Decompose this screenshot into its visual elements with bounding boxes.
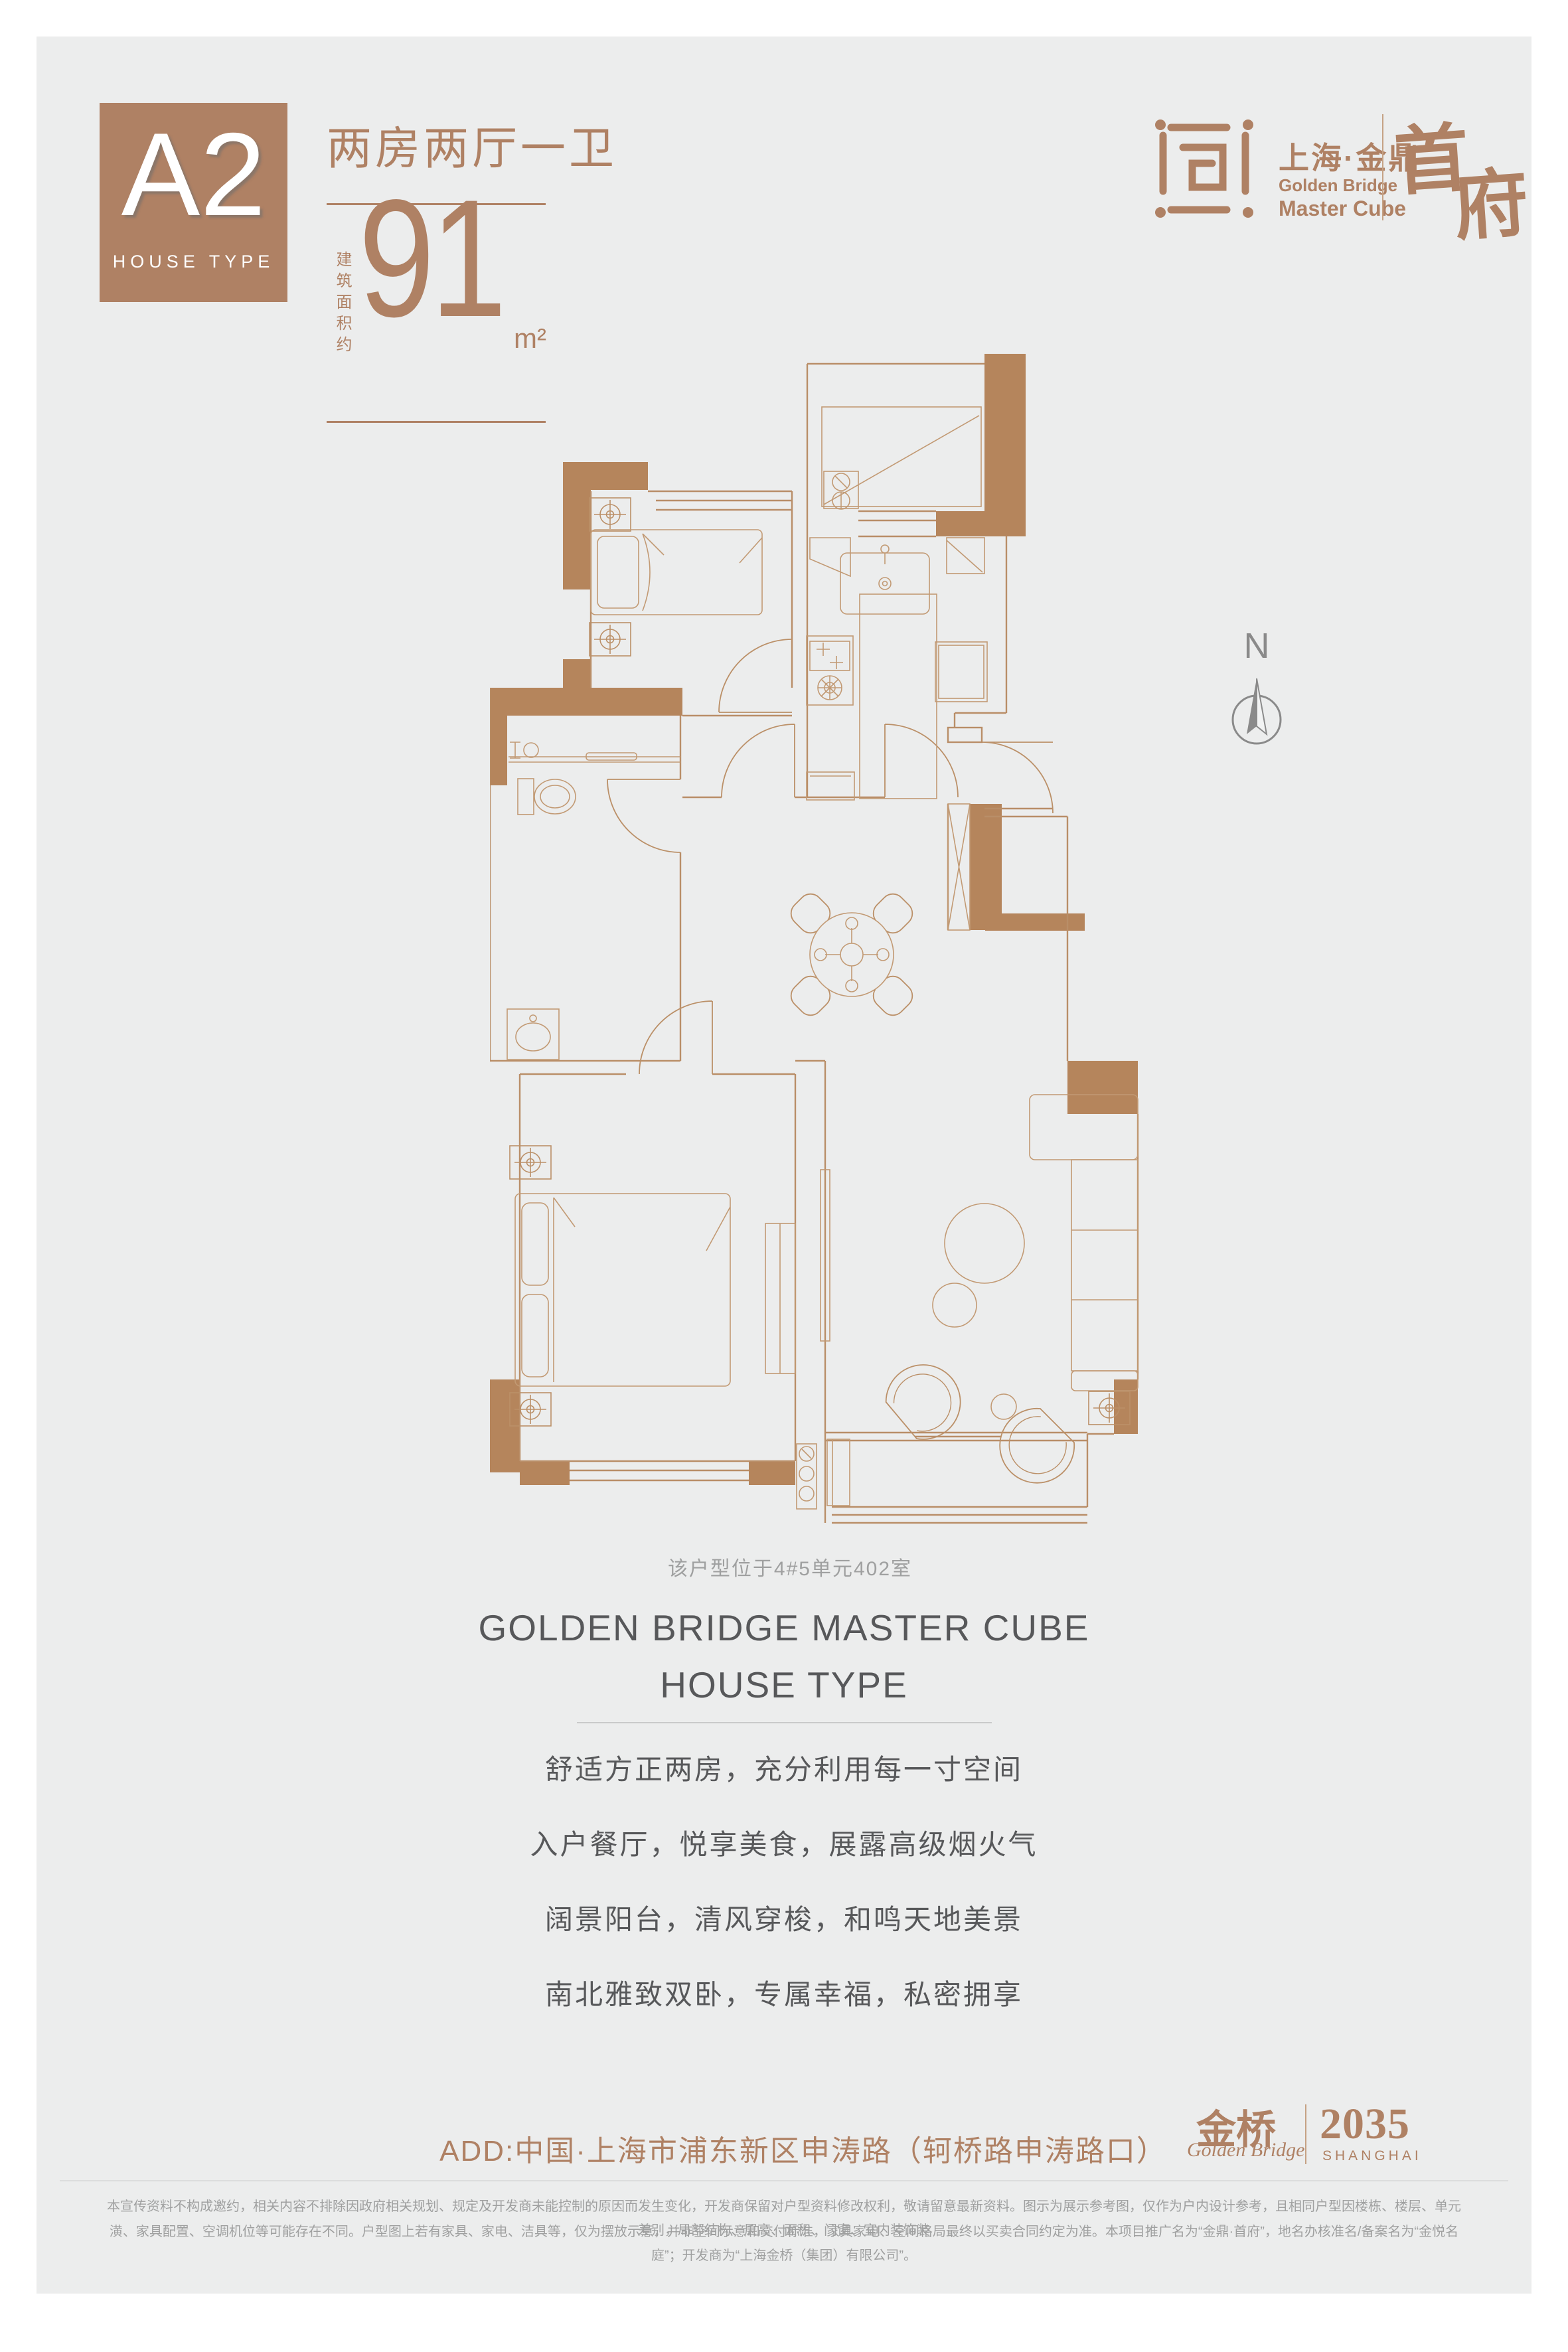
utility-counter-icon (822, 407, 981, 509)
selling-point-4: 南北雅致双卧，专属幸福，私密拥享 (0, 1972, 1568, 2013)
toilet-icon (518, 779, 576, 815)
sofa-icon (1030, 1095, 1138, 1391)
bedroom2-door (719, 639, 792, 712)
footer-brand-year: 2035 (1320, 2099, 1410, 2150)
kitchen-icons (807, 538, 987, 800)
brand-lockup: 上海·金鼎 Golden Bridge Master Cube 首 府 (1148, 106, 1520, 239)
ceiling-light-icon (589, 623, 631, 656)
compass-icon (1220, 666, 1293, 759)
section-divider (577, 1722, 992, 1723)
house-type-badge: A2 HOUSE TYPE (100, 103, 287, 302)
section-heading-line2: HOUSE TYPE (0, 1664, 1568, 1706)
brand-name-en1: Golden Bridge (1279, 175, 1397, 196)
stove-icon (807, 636, 853, 705)
dining-table-icon (786, 889, 917, 1020)
selling-point-2: 入户餐厅，悦享美食，展露高级烟火气 (0, 1822, 1568, 1863)
balcony-table-icon (991, 1394, 1016, 1419)
floor-plan (490, 344, 1174, 1539)
footer-brand-lockup: 金桥 Golden Bridge 2035 SHANGHAI (1187, 2098, 1426, 2177)
armchair-icon (878, 1350, 976, 1449)
poster-page: A2 HOUSE TYPE 两房两厅一卫 建筑面积约 91 m² 上海·金鼎 G… (0, 0, 1568, 2352)
bed2-icon (591, 530, 762, 615)
footer-brand-script: Golden Bridge (1187, 2139, 1304, 2161)
calligraphy-char-2: 府 (1450, 143, 1531, 255)
house-type-code: A2 (100, 108, 287, 241)
selling-point-3: 阔景阳台，清风穿梭，和鸣天地美景 (0, 1897, 1568, 1938)
section-heading-line1: GOLDEN BRIDGE MASTER CUBE (0, 1607, 1568, 1649)
entry-closet-icon (948, 804, 970, 930)
area-value: 91 (358, 175, 503, 343)
wall-fills (490, 354, 1138, 1485)
vanity-sink-icon (507, 1009, 559, 1059)
house-type-label: HOUSE TYPE (100, 252, 287, 272)
project-name-calligraphy: 首 府 (1391, 94, 1526, 242)
footer-brand-divider (1305, 2104, 1306, 2164)
coffee-table-icon (945, 1204, 1024, 1283)
brand-name-en2: Master Cube (1279, 196, 1406, 221)
area-label: 建筑面积约 (331, 251, 354, 357)
footer-divider (60, 2180, 1508, 2181)
master-bed-icon (515, 1194, 730, 1386)
balcony-chair-icon (984, 1399, 1083, 1498)
selling-point-1: 舒适方正两房，充分利用每一寸空间 (0, 1747, 1568, 1788)
footer-brand-city: SHANGHAI (1322, 2148, 1422, 2164)
bathroom-door (607, 779, 680, 852)
master-cube-seal-icon (1148, 113, 1260, 224)
disclaimer-line2: 潢、家具配置、空调机位等可能存在不同。户型图上若有家具、家电、洁具等，仅为摆放示… (104, 2220, 1464, 2268)
hall-door-left (722, 724, 795, 797)
kitchen-door (885, 724, 958, 797)
balcony-icons (797, 1394, 1083, 1509)
living-room-icons (821, 1095, 1138, 1449)
north-label: N (1220, 625, 1293, 666)
ceiling-light-icon (589, 498, 631, 531)
brand-divider (1382, 114, 1383, 220)
entry-door (982, 742, 1053, 813)
plan-caption: 该户型位于4#5单元402室 (425, 1552, 1155, 1581)
master-door (639, 1001, 712, 1074)
north-compass: N (1220, 625, 1293, 758)
ceiling-light-icon (510, 1146, 551, 1179)
furniture (507, 407, 1138, 1509)
bathroom-icons (507, 742, 680, 1059)
